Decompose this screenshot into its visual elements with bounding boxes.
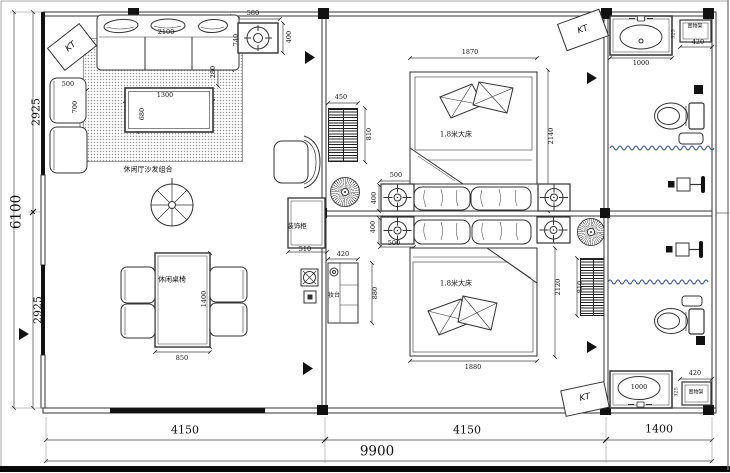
bathroom-bottom-fixtures [608, 241, 711, 408]
dim-bay-left: 4150 [171, 425, 199, 436]
dim-bath1-sink-width: 1000 [633, 60, 650, 67]
dim-dining-width: 850 [176, 355, 188, 362]
dim-ac-width: 580 [247, 10, 259, 17]
dim-dresser-width: 420 [337, 251, 349, 258]
label-bed-top: 1.8米大床 [440, 132, 472, 139]
dim-coffee-table-height: 680 [139, 108, 146, 120]
label-kt-3: KT [579, 393, 591, 404]
label-bed-bottom: 1.8米大床 [440, 281, 472, 288]
dim-sofa-depth: 740 [233, 34, 240, 46]
dim-bed2-width: 1880 [465, 364, 482, 371]
label-shelf-bottom: 置物架 [688, 391, 703, 396]
dim-shoe-cabinet-height: 810 [366, 128, 373, 140]
dim-left-top: 2925 [31, 98, 42, 126]
dim-ac-height: 400 [286, 31, 293, 43]
label-sofa-group: 休闲厅沙发组合 [124, 167, 173, 174]
dim-bath2-sink-width: 1000 [631, 384, 648, 391]
floor-plan-page: 580 400 2100 740 280 500 700 1300 680 29… [0, 0, 730, 473]
floor-plan-drawing [0, 0, 730, 473]
dim-bath1-shelf-width: 420 [692, 39, 704, 46]
dim-bed2-length: 2120 [555, 279, 562, 296]
dim-coffee-table-width: 1300 [157, 92, 174, 99]
dim-dresser-height: 880 [372, 287, 379, 299]
living-room-furniture [50, 15, 278, 347]
label-shelf-top: 置物架 [687, 25, 702, 30]
dim-bay-mid: 4150 [453, 425, 481, 436]
dim-left-bottom: 2925 [33, 296, 44, 324]
label-dresser: 妆台 [328, 293, 340, 299]
dim-bath2-shelf-width: 420 [689, 370, 701, 377]
dim-sofa-width: 2100 [158, 29, 175, 36]
walls [41, 12, 729, 413]
dim-bath2-gap: 325 [675, 387, 680, 397]
dim-bay-right: 1400 [645, 424, 673, 435]
dim-nightstand-bottom-height: 400 [370, 221, 377, 233]
dim-nightstand-bottom-width: 500 [388, 240, 400, 247]
dim-shoe-cabinet-width: 450 [335, 94, 347, 101]
dim-side-chair-depth: 700 [72, 101, 79, 113]
label-dining-set: 休闲桌椅 [158, 277, 186, 284]
dim-overall-width: 9900 [360, 445, 394, 459]
dim-nightstand-top-width: 500 [390, 172, 402, 179]
dim-cabinet2-height: 810 [577, 281, 584, 293]
dim-sofa-gap: 280 [210, 66, 217, 78]
dim-bath1-gap: 325 [672, 29, 677, 39]
dim-nightstand-top-height: 400 [371, 192, 378, 204]
dim-bed1-length: 2140 [548, 128, 555, 145]
label-deco-cabinet: 装饰柜 [287, 223, 307, 230]
dim-side-ch air-width: 500 [62, 81, 74, 88]
dim-deco-cabinet-width: 510 [299, 246, 311, 253]
dim-bed1-width: 1870 [462, 49, 479, 56]
dim-overall-height: 6100 [10, 195, 24, 229]
dim-dining-length: 1400 [201, 291, 208, 308]
